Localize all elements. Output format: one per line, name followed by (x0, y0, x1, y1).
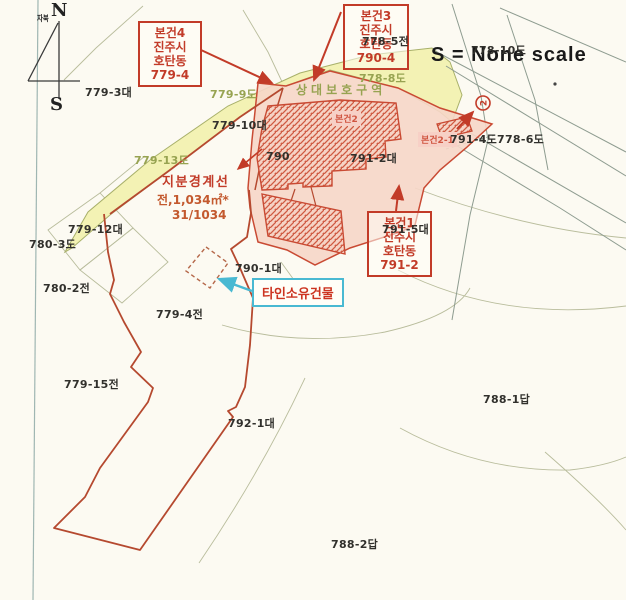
parcel-label-790-1: 790-1대 (235, 260, 282, 276)
compass-south-label: S (50, 94, 63, 115)
compass-north-label: N (51, 0, 67, 21)
protection-zone-label: 상대보호구역 (296, 81, 386, 98)
callout-site1-line3: 호탄동 (372, 244, 427, 258)
parcel-label-778-6: 778-6도 (497, 131, 544, 147)
parcel-label-778-5: 778-5전 (362, 33, 409, 49)
parcel-label-792-1: 792-1대 (228, 415, 275, 431)
parcel-label-791-2: 791-2대 (350, 150, 397, 166)
callout-site4-line4: 779-4 (143, 68, 197, 82)
parcel-label-779-9: 779-9도 (210, 86, 257, 102)
compass-lines (28, 21, 80, 99)
parcel-label-779-15: 779-15전 (64, 376, 119, 392)
callout-site4-line3: 호탄동 (143, 54, 197, 68)
parcel-label-779-13: 779-13도 (134, 152, 189, 168)
parcel-label-779-10: 779-10대 (212, 117, 267, 133)
parcel-label-791-4: 791-4도 (450, 131, 497, 147)
map-dot (553, 82, 556, 85)
parcel-label-788-2: 788-2답 (331, 536, 378, 552)
callout-other-owner-building: 타인소유건물 (252, 278, 344, 307)
parcel-label-779-12: 779-12대 (68, 221, 123, 237)
callout-site1-line4: 791-2 (372, 258, 427, 272)
parcel-label-779-3: 779-3대 (85, 84, 132, 100)
circle-mark-glyph: 2 (480, 100, 490, 106)
share-boundary-title: 지분경계선 (162, 171, 229, 190)
parcel-label-780-2: 780-2전 (43, 280, 90, 296)
callout-site3-line1: 본건3 (348, 9, 404, 23)
parcel-label-791-5: 791-5대 (382, 221, 429, 237)
callout-site4-line1: 본건4 (143, 26, 197, 40)
callout-site3-line4: 790-4 (348, 51, 404, 65)
parcel-label-790: 790 (266, 150, 290, 163)
parcel-label-779-4: 779-4전 (156, 306, 203, 322)
other-owner-building-outline (186, 247, 228, 288)
callout-site4-line2: 진주시 (143, 40, 197, 54)
parcel-label-788-1: 788-1답 (483, 391, 530, 407)
parcel-label-778-10: 778-10도 (471, 42, 526, 58)
callout-site4: 본건4 진주시 호탄동 779-4 (138, 21, 202, 87)
share-boundary-area: 전,1,034㎡* (157, 191, 229, 208)
parcel-label-780-3: 780-3도 (29, 236, 76, 252)
building-2-tag: 본건2 (332, 111, 361, 126)
cadastral-map: 2 N S 자북 S = None scale 본건4 진주시 호탄동 779-… (0, 0, 626, 600)
compass-declination-label: 자북 (37, 13, 49, 24)
share-boundary-fraction: 31/1034 (172, 208, 226, 222)
